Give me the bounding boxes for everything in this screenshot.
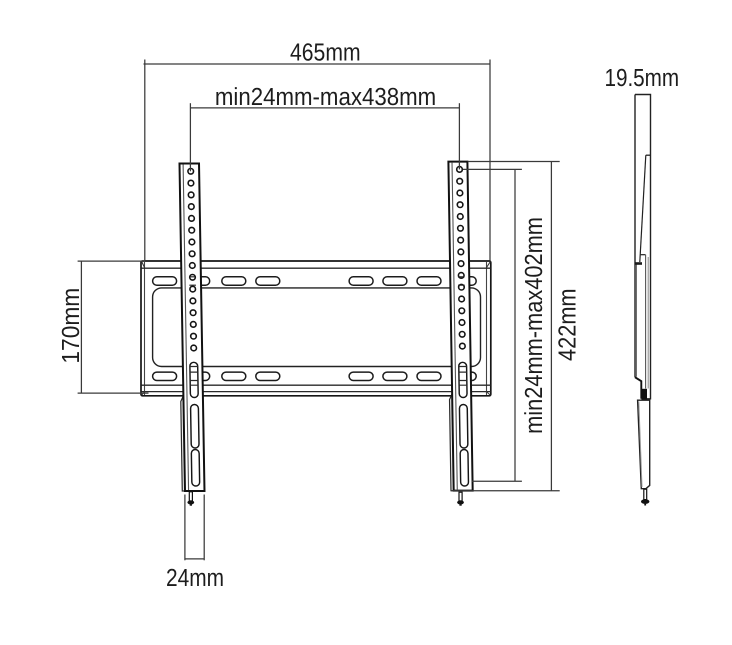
svg-text:422mm: 422mm — [555, 288, 582, 361]
svg-text:170mm: 170mm — [58, 288, 85, 364]
svg-text:min24mm-max402mm: min24mm-max402mm — [521, 217, 548, 434]
svg-text:24mm: 24mm — [166, 565, 224, 592]
svg-text:465mm: 465mm — [290, 40, 361, 67]
svg-text:19.5mm: 19.5mm — [604, 65, 679, 92]
svg-text:min24mm-max438mm: min24mm-max438mm — [215, 84, 436, 111]
